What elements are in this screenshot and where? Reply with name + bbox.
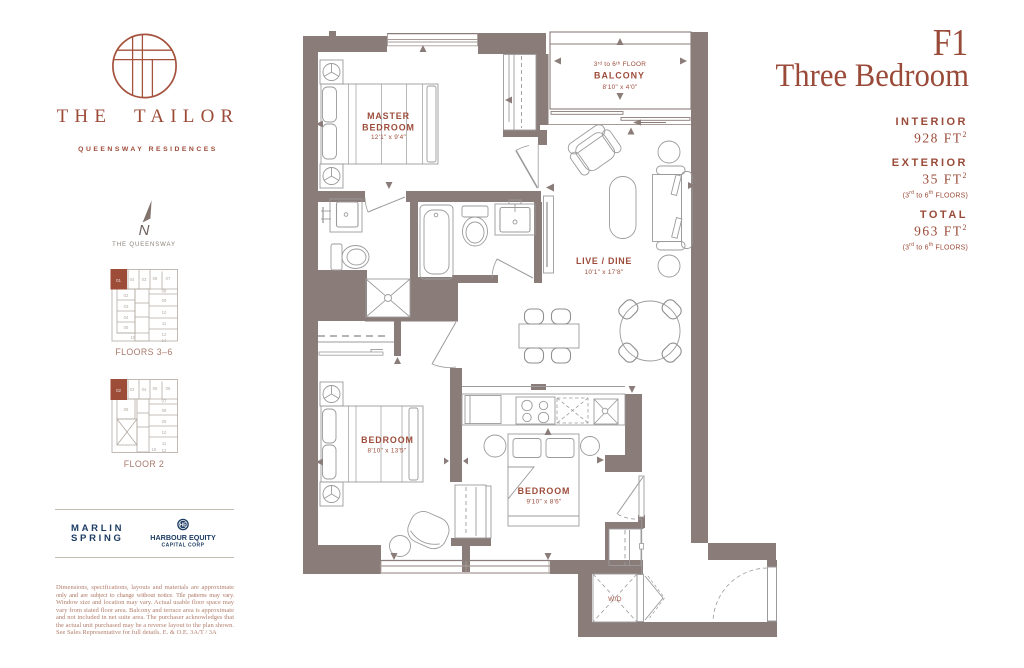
svg-text:BALCONY: BALCONY [594,71,645,81]
svg-text:10'1" x 17'8": 10'1" x 17'8" [585,269,624,276]
svg-text:BEDROOM: BEDROOM [361,435,414,445]
svg-text:MASTER: MASTER [367,111,410,121]
svg-text:9'10" x 8'6": 9'10" x 8'6" [526,498,561,505]
svg-text:W/D: W/D [608,596,622,603]
svg-text:8'10" x 13'5": 8'10" x 13'5" [368,447,407,454]
svg-text:3ʳᵈ to 6ᵗʰ FLOOR: 3ʳᵈ to 6ᵗʰ FLOOR [594,61,646,68]
svg-text:BEDROOM: BEDROOM [362,123,415,133]
svg-text:LIVE / DINE: LIVE / DINE [576,256,632,266]
svg-text:12'1" x 9'4": 12'1" x 9'4" [371,134,406,141]
svg-text:BEDROOM: BEDROOM [518,486,571,496]
svg-text:8'10" x 4'0": 8'10" x 4'0" [602,84,637,91]
